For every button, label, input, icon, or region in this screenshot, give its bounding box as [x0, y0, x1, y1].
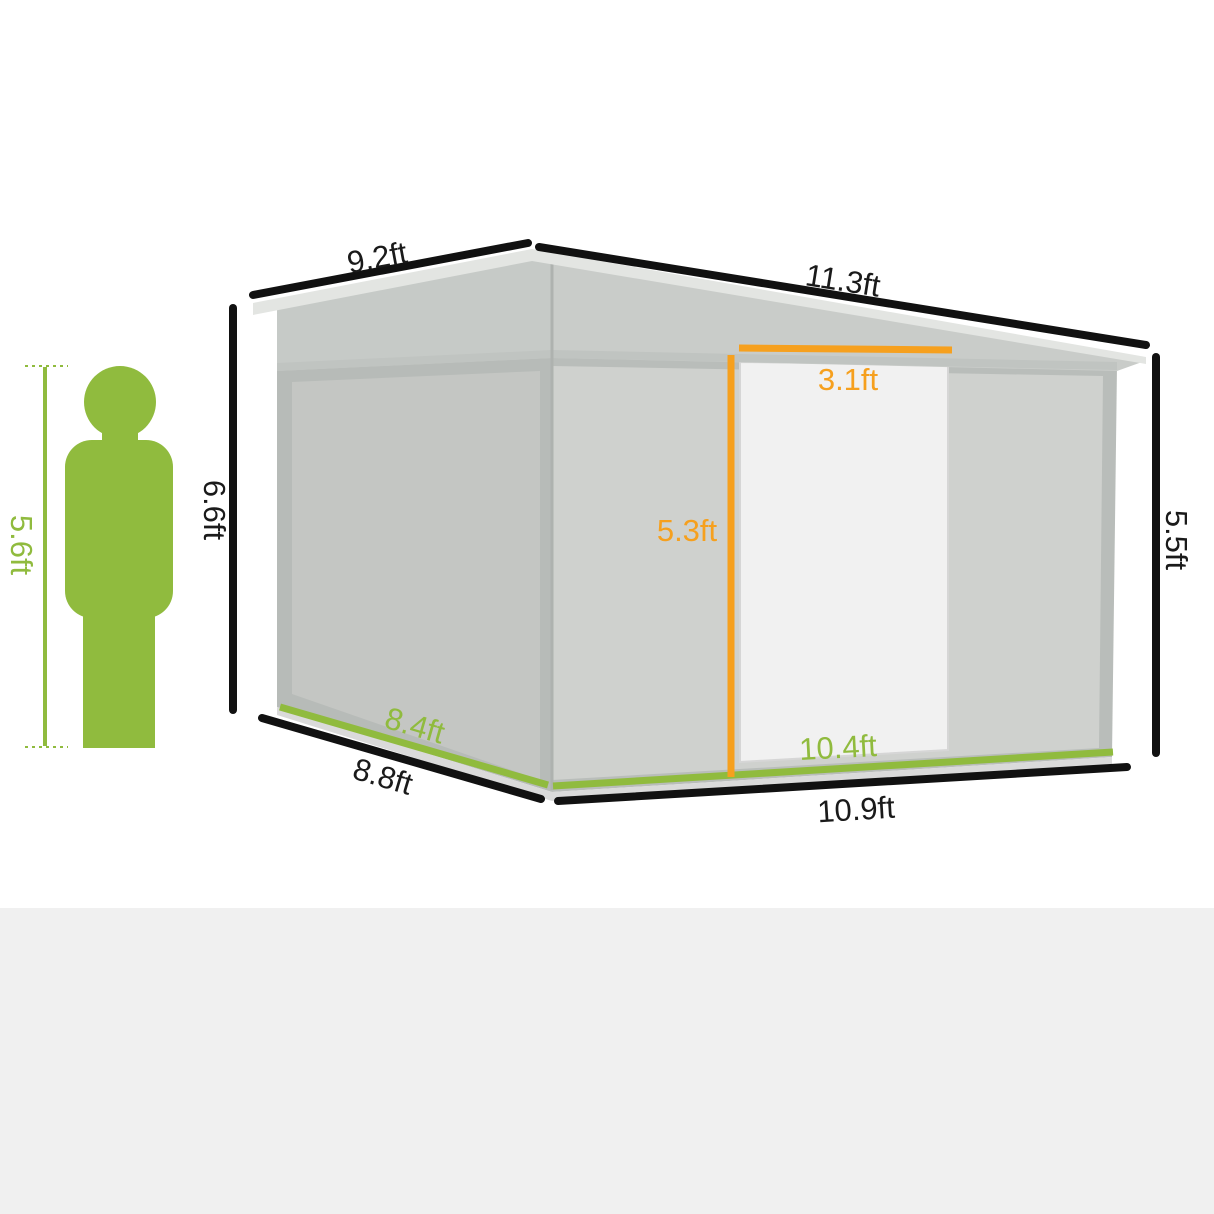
- door-height-label: 5.3ft: [657, 513, 718, 548]
- product-dimension-diagram: 8.4ft 10.4ft 3.1ft 5.3ft 9.2ft 11.3ft 6.…: [0, 0, 1214, 1214]
- shed-door: [740, 362, 948, 762]
- roof-right-label: 11.3ft: [803, 257, 883, 303]
- roof-left-label: 9.2ft: [344, 235, 410, 280]
- person-legs: [83, 600, 155, 748]
- person-scale-figure: 5.6ft: [4, 366, 173, 748]
- shed-diagram-canvas: 8.4ft 10.4ft 3.1ft 5.3ft 9.2ft 11.3ft 6.…: [0, 0, 1214, 908]
- wall-right-height-label: 5.5ft: [1159, 510, 1194, 571]
- door-width-label: 3.1ft: [818, 362, 879, 397]
- inner-width-label: 10.4ft: [798, 728, 878, 767]
- door-width-line: [739, 348, 952, 350]
- base-width-label: 10.9ft: [816, 790, 896, 830]
- person-torso: [65, 440, 173, 618]
- wall-left-height-label: 6.6ft: [197, 480, 232, 541]
- person-height-label: 5.6ft: [4, 515, 39, 576]
- legend: Overall Dimensions Inner Storage: [0, 908, 1214, 1214]
